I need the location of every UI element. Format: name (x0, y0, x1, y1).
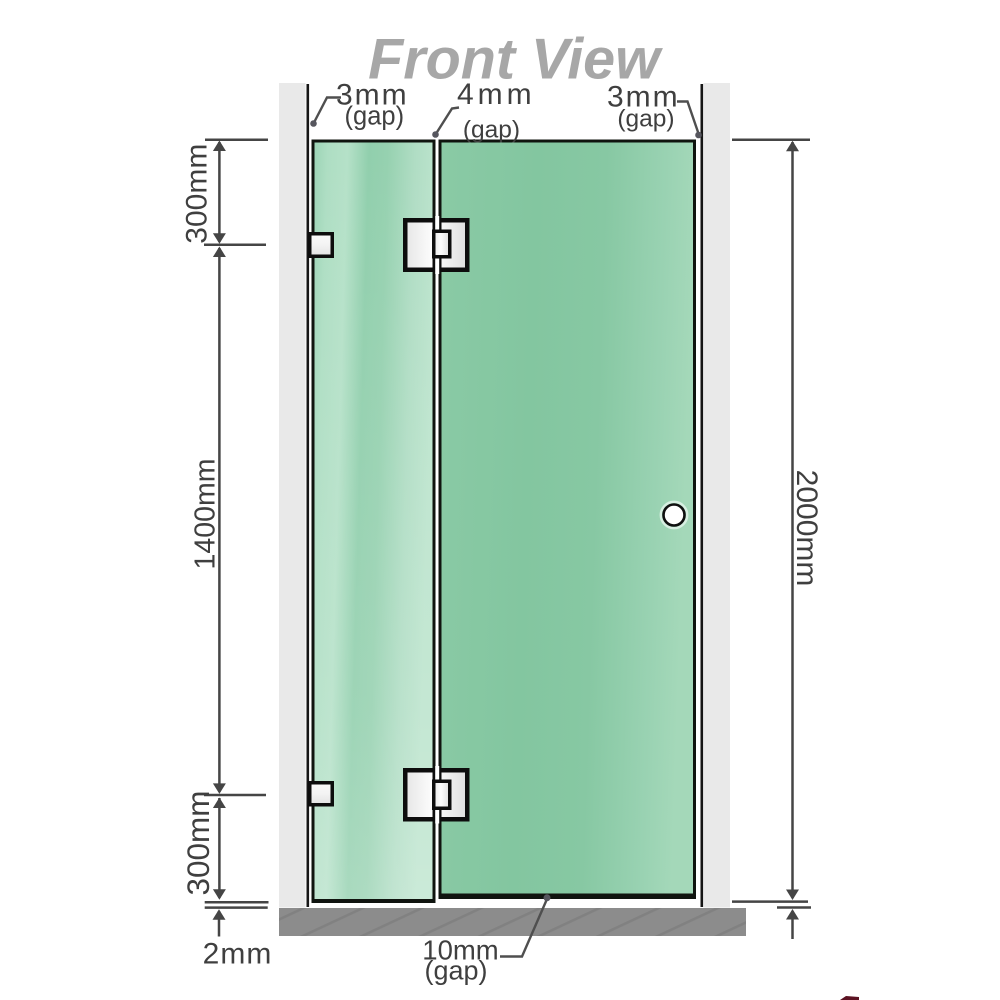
svg-text:2mm: 2mm (203, 938, 273, 971)
svg-text:300mm: 300mm (181, 144, 214, 244)
svg-text:1400mm: 1400mm (190, 459, 222, 570)
svg-text:2000mm: 2000mm (790, 470, 823, 587)
svg-text:(gap): (gap) (617, 106, 674, 133)
svg-text:(gap): (gap) (424, 956, 487, 986)
svg-text:4mm: 4mm (457, 78, 536, 111)
svg-text:300mm: 300mm (180, 790, 216, 895)
svg-text:(gap): (gap) (463, 117, 520, 144)
svg-text:(gap): (gap) (345, 103, 405, 131)
